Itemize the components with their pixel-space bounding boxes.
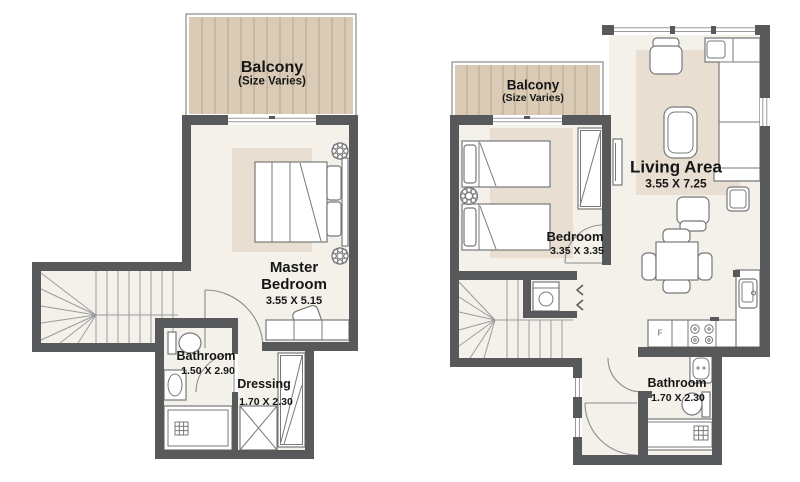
- armchair: [677, 197, 709, 231]
- bedroom-label: Bedroom: [546, 230, 603, 244]
- twin-bed: [462, 141, 550, 187]
- right-balcony-sublabel: (Size Varies): [502, 93, 564, 105]
- washing-machine: [533, 282, 559, 311]
- bedside-table: [461, 188, 478, 205]
- left-balcony-label: Balcony: [241, 59, 303, 77]
- window: [493, 115, 562, 125]
- shower: [164, 406, 232, 450]
- left-balcony-sublabel: (Size Varies): [238, 76, 306, 89]
- kitchen-sink: [739, 279, 757, 308]
- floorplan-canvas: Balcony (Size Varies) Master Bedroom 3.5…: [0, 0, 800, 482]
- master-bed: [255, 158, 348, 246]
- desk: [266, 320, 349, 340]
- window: [614, 25, 755, 35]
- master-bedroom-dims: 3.55 X 5.15: [266, 295, 322, 307]
- flower-icon: [332, 248, 348, 264]
- coffee-table: [664, 107, 697, 158]
- right-bathroom-dims: 1.70 X 2.30: [651, 393, 705, 405]
- window: [760, 98, 770, 126]
- side-table: [727, 187, 749, 211]
- right-balcony-label: Balcony: [507, 79, 560, 94]
- armchair: [650, 38, 682, 74]
- window: [573, 418, 582, 437]
- left-plan: [32, 14, 358, 459]
- fridge-label: F: [658, 330, 663, 339]
- bedroom-dims: 3.35 X 3.35: [550, 246, 604, 258]
- left-bathroom-label: Bathroom: [176, 350, 235, 364]
- tv-unit: [613, 139, 622, 185]
- wardrobe: [578, 128, 603, 209]
- floorplan-drawing: [0, 0, 800, 482]
- flower-icon: [332, 143, 348, 159]
- living-area-dims: 3.55 X 7.25: [645, 177, 706, 190]
- dressing-dims: 1.70 X 2.30: [239, 397, 293, 409]
- left-bathroom-dims: 1.50 X 2.90: [181, 366, 235, 378]
- window: [573, 378, 582, 397]
- master-bedroom-label: Master Bedroom: [257, 260, 331, 294]
- bathtub: [644, 419, 715, 450]
- shoe-cabinet: [240, 406, 277, 450]
- window: [228, 115, 316, 125]
- twin-bed: [462, 204, 550, 250]
- right-plan: [450, 25, 770, 465]
- dressing-label: Dressing: [237, 378, 291, 392]
- living-area-label: Living Area: [630, 159, 722, 178]
- right-bathroom-label: Bathroom: [647, 377, 706, 391]
